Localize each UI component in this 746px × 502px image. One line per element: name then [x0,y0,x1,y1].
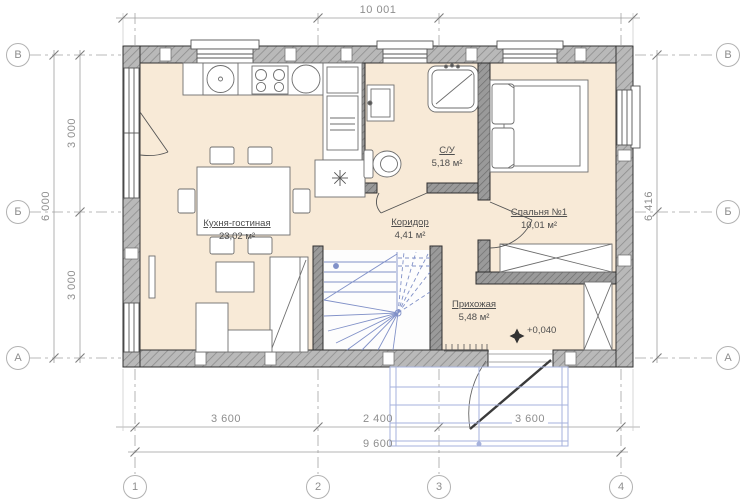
wardrobe-hall [584,282,612,350]
axis-col-3: 3 [427,475,451,499]
dim-left-segment-2: 3 000 [66,270,78,300]
window-bathroom [377,41,433,63]
room-label-hallway: Прихожая 5,48 м² [452,298,496,325]
bed [490,80,588,172]
room-label-corridor: Коридор 4,41 м² [391,216,429,243]
dim-bottom-segment-1: 3 600 [211,413,241,425]
axis-row-b-right: Б [716,200,740,224]
entry-threshold [488,354,553,362]
coffee-table [216,262,254,292]
axis-col-4: 4 [609,475,633,499]
axis-row-v-left: В [6,43,30,67]
toilet [364,150,401,178]
room-label-kitchen-living: Кухня-гостиная 23,02 м² [203,217,270,244]
window-bedroom-right [617,86,640,148]
floor-plan-drawing [0,0,746,502]
axis-col-1: 1 [123,475,147,499]
window-kitchen [191,40,259,63]
room-label-bedroom: Спальня №1 10,01 м² [511,206,567,233]
window-living-left-large [124,68,139,198]
axis-row-a-left: А [6,346,30,370]
window-bedroom-top [497,41,563,63]
dim-right-total: 6 416 [643,191,655,221]
dim-left-outer: 6 000 [40,191,52,221]
axis-row-b-left: Б [6,200,30,224]
dim-bottom-segment-2: 2 400 [363,413,393,425]
floor-plan-page: В Б А В Б А 1 2 3 4 10 001 6 000 3 000 3… [0,0,746,502]
window-living-left-small [124,303,139,352]
axis-row-a-right: А [716,346,740,370]
shower [428,64,478,112]
dim-bottom-segment-3: 3 600 [512,413,548,425]
dim-left-segment-1: 3 000 [66,118,78,148]
room-label-bathroom: С/У 5,18 м² [432,144,463,171]
elevation-mark-value: +0,040 [527,325,556,336]
tv [149,256,155,298]
dim-top-total: 10 001 [360,4,397,16]
kitchen-counter [183,63,325,95]
kitchen-island-appliance [315,160,365,197]
axis-col-2: 2 [306,475,330,499]
kitchen-tall-units [323,63,362,160]
dim-bottom-total: 9 600 [363,438,393,450]
washbasin [367,85,394,121]
porch-steps [390,367,568,446]
axis-row-v-right: В [716,43,740,67]
wardrobe-bedroom [500,244,612,272]
